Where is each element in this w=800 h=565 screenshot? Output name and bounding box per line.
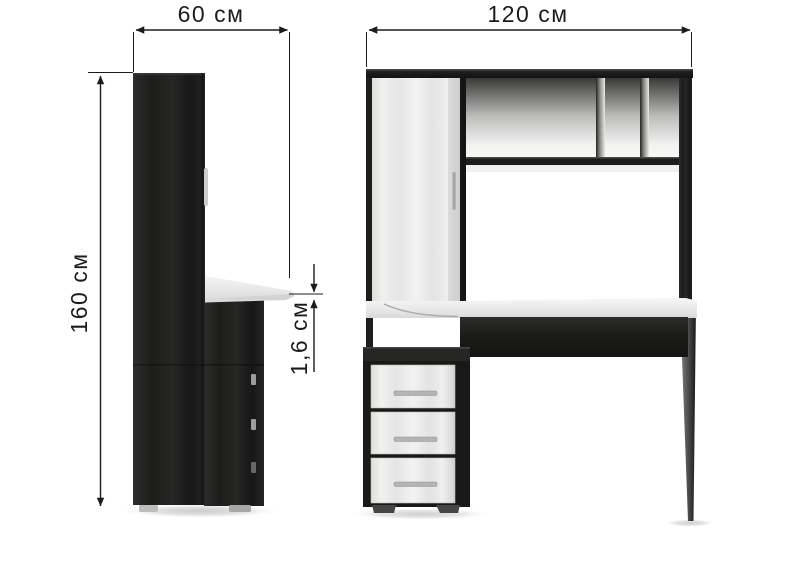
cabinet-door xyxy=(372,78,460,303)
side-cabinet-right-edge xyxy=(201,73,204,505)
side-drawer-handle-2 xyxy=(251,419,256,430)
drawer-handle-2 xyxy=(394,437,437,442)
desk-apron xyxy=(460,317,688,357)
hutch-shelf-under-shadow xyxy=(463,165,681,172)
dim-label-width: 120 см xyxy=(487,1,568,27)
dim-label-depth: 60 см xyxy=(178,1,245,27)
pedestal-top-edge xyxy=(363,347,470,349)
pedestal-foot-right xyxy=(436,505,460,513)
pedestal-top xyxy=(363,347,470,361)
front-view-photo xyxy=(348,69,716,527)
front-view-floor-shadow-left xyxy=(348,508,492,520)
drawer-handle-1 xyxy=(394,391,437,396)
side-cabinet-column xyxy=(133,73,205,505)
side-view-photo xyxy=(118,73,295,518)
side-drawer-handle-3 xyxy=(251,462,256,473)
dim-label-height: 160 см xyxy=(66,252,92,333)
side-panel-seam xyxy=(133,364,264,366)
desktop-slab xyxy=(366,301,697,318)
hutch-right-panel xyxy=(679,74,692,303)
drawer-handle-3 xyxy=(394,482,437,487)
hutch-top-highlight xyxy=(366,69,693,71)
side-cabinet-top-edge xyxy=(133,73,205,75)
side-foot-left xyxy=(139,505,158,512)
drawer-front-1 xyxy=(371,365,455,408)
furniture-dimension-diagram: 60 см 120 см 160 см 1,6 см xyxy=(0,0,800,565)
hutch-divider-2 xyxy=(640,78,649,162)
drawer-front-3 xyxy=(371,458,455,503)
side-drawer-handle-1 xyxy=(251,374,256,385)
drawer-front-2 xyxy=(371,412,455,454)
hutch-shelf-top-edge xyxy=(463,157,681,159)
side-foot-right xyxy=(229,505,251,512)
cabinet-door-handle xyxy=(453,172,456,210)
cabinet-inner-edge xyxy=(459,78,466,303)
side-drawer-box xyxy=(204,300,264,506)
side-door-handle xyxy=(204,168,208,206)
diagram-svg: 60 см 120 см 160 см 1,6 см xyxy=(0,0,800,565)
dim-label-thickness: 1,6 см xyxy=(286,301,312,376)
hutch-divider-1 xyxy=(596,78,605,162)
pedestal-foot-left xyxy=(372,505,396,513)
